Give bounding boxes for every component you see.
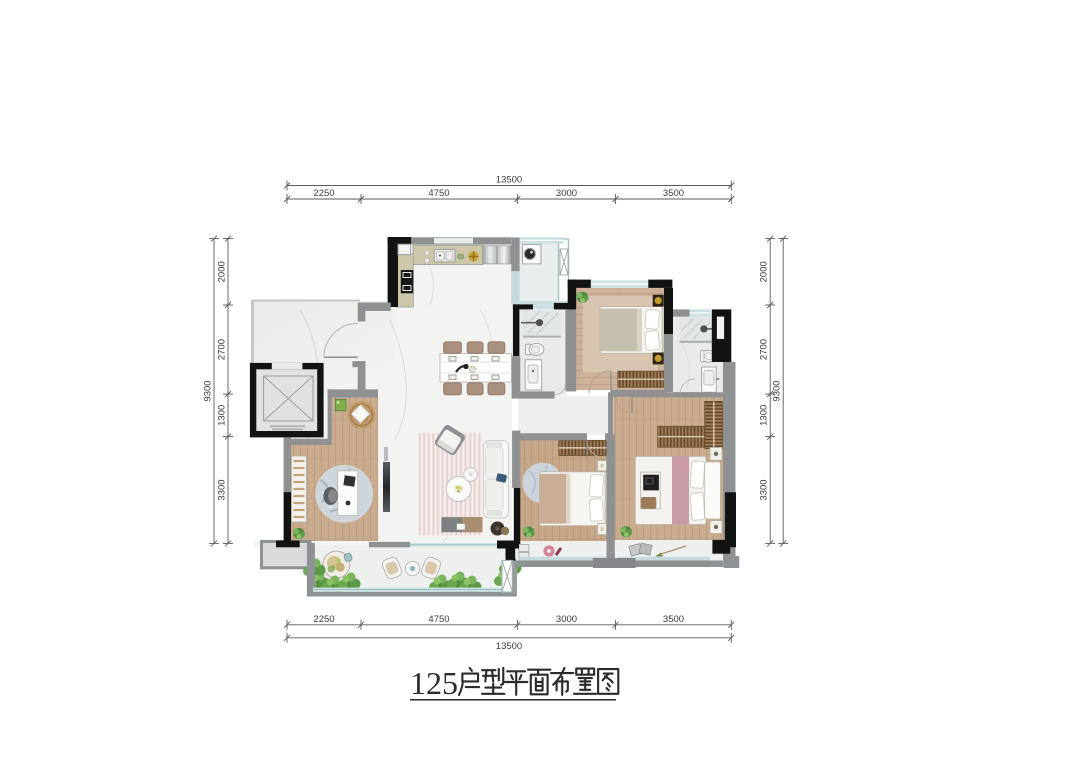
- svg-text:2250: 2250: [313, 188, 334, 199]
- svg-text:1300: 1300: [217, 405, 228, 426]
- svg-text:3300: 3300: [217, 479, 228, 500]
- svg-text:2700: 2700: [759, 339, 770, 360]
- svg-text:1300: 1300: [759, 405, 770, 426]
- svg-text:13500: 13500: [496, 641, 522, 652]
- svg-text:9300: 9300: [203, 380, 214, 401]
- svg-text:4750: 4750: [428, 614, 449, 625]
- svg-text:3300: 3300: [759, 479, 770, 500]
- svg-text:125: 125: [410, 665, 458, 701]
- svg-text:4750: 4750: [428, 188, 449, 199]
- svg-text:3000: 3000: [556, 614, 577, 625]
- svg-text:13500: 13500: [496, 175, 522, 186]
- svg-text:2000: 2000: [217, 261, 228, 282]
- svg-text:2000: 2000: [759, 261, 770, 282]
- svg-text:2700: 2700: [217, 339, 228, 360]
- svg-text:9300: 9300: [772, 380, 783, 401]
- svg-text:3500: 3500: [663, 614, 684, 625]
- svg-text:3000: 3000: [556, 188, 577, 199]
- svg-text:2250: 2250: [313, 614, 334, 625]
- svg-text:3500: 3500: [663, 188, 684, 199]
